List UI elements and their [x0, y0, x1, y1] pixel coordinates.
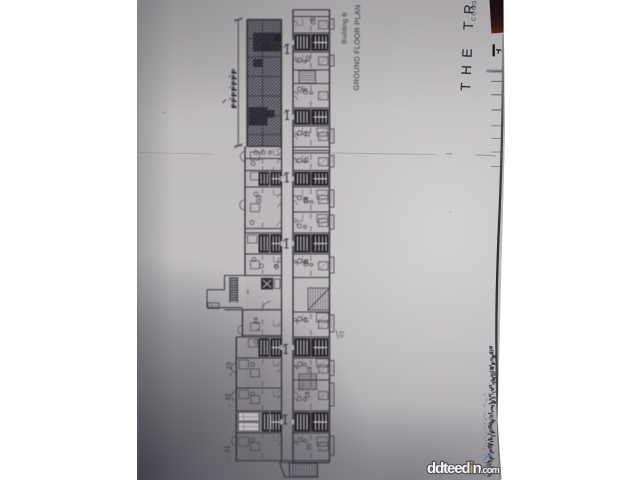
svg-text:THE TREE: THE TREE [458, 0, 479, 91]
svg-text:.com: .com [481, 465, 500, 475]
svg-text:ddteedin: ddteedin [427, 460, 482, 477]
